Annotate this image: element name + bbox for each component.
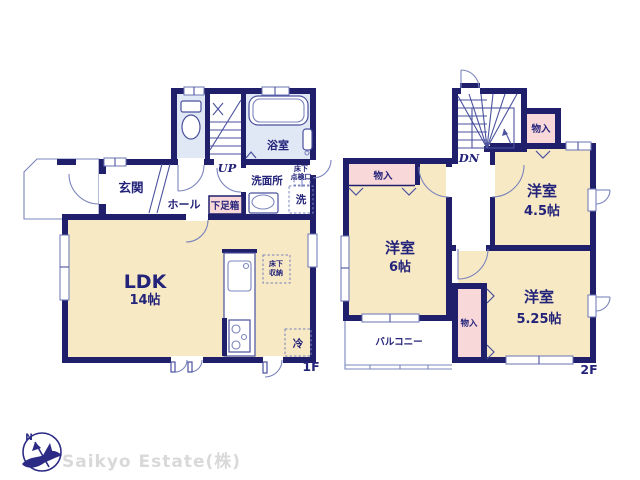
label-room525-size: 5.25帖 — [516, 311, 561, 327]
label-floor-2f: 2F — [580, 362, 597, 377]
label-hall: ホール — [168, 198, 201, 211]
compass-north-label: N — [25, 433, 33, 443]
label-closet-middle: 物入 — [460, 318, 478, 329]
label-room6-size: 6帖 — [389, 259, 411, 275]
label-floor-1f: 1F — [302, 359, 319, 374]
label-inspection-2: 点検口 — [291, 172, 312, 181]
label-underfloor-1: 床下 — [269, 259, 283, 268]
washbasin-icon — [249, 193, 278, 213]
staircase-1f — [210, 100, 241, 154]
footer: N Saikyo Estate(株) — [22, 433, 241, 472]
staircase-2f — [458, 94, 517, 148]
label-room45: 洋室 — [527, 182, 557, 200]
label-washroom: 洗面所 — [251, 174, 283, 187]
label-closet-top: 物入 — [531, 123, 551, 135]
floorplan-drawing: 玄関 ホール 下足箱 浴室 洗面所 UP LDK 14帖 床下 収納 床下 点検… — [0, 0, 640, 480]
compass-icon: N — [22, 433, 62, 471]
label-inspection-1: 床下 — [294, 164, 308, 173]
label-fridge: 冷 — [293, 337, 304, 350]
label-bathroom: 浴室 — [267, 138, 289, 152]
label-closet-left: 物入 — [373, 170, 393, 182]
label-room45-size: 4.5帖 — [524, 203, 560, 219]
label-shoe-box: 下足箱 — [211, 200, 240, 212]
company-name: Saikyo Estate(株) — [62, 451, 241, 472]
label-ldk-size: 14帖 — [129, 292, 160, 308]
label-washer: 洗 — [296, 193, 307, 206]
label-balcony: バルコニー — [375, 336, 422, 348]
entrance-porch — [24, 159, 99, 219]
label-up: UP — [218, 161, 237, 175]
label-underfloor-2: 収納 — [269, 268, 283, 277]
floor-2f: DN 物入 物入 物入 洋室 6帖 洋室 4.5帖 洋室 5.25帖 バルコニー… — [341, 70, 610, 377]
toilet-icon — [181, 101, 201, 139]
room-ldk — [68, 220, 310, 357]
label-room525: 洋室 — [524, 288, 554, 306]
kitchen-counter-icon — [222, 249, 257, 356]
label-ldk: LDK — [124, 271, 168, 293]
label-room6: 洋室 — [385, 239, 415, 257]
label-entrance: 玄関 — [118, 180, 143, 195]
floorplan-page: 玄関 ホール 下足箱 浴室 洗面所 UP LDK 14帖 床下 収納 床下 点検… — [0, 0, 640, 480]
label-dn: DN — [458, 151, 480, 165]
floor-1f: 玄関 ホール 下足箱 浴室 洗面所 UP LDK 14帖 床下 収納 床下 点検… — [24, 87, 331, 377]
